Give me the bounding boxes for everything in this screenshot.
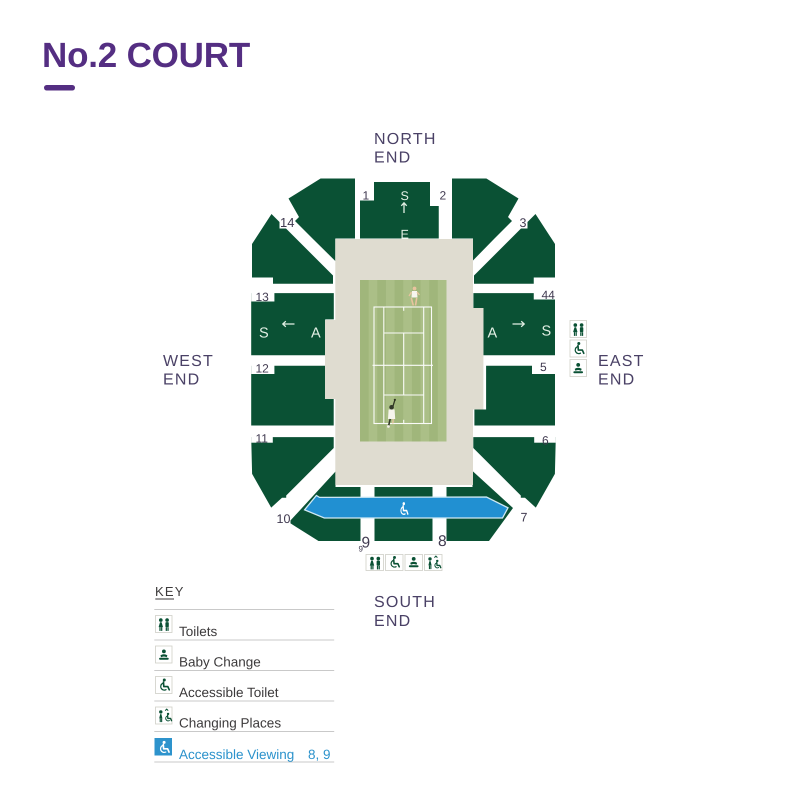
svg-text:END: END <box>374 613 411 630</box>
svg-text:7: 7 <box>521 511 528 525</box>
svg-text:11: 11 <box>256 432 269 446</box>
svg-text:Accessible Viewing: Accessible Viewing <box>179 747 294 762</box>
svg-text:S: S <box>259 326 269 342</box>
svg-text:8: 8 <box>438 533 447 550</box>
svg-text:Baby Change: Baby Change <box>179 655 261 670</box>
svg-text:S: S <box>401 189 409 203</box>
svg-text:S: S <box>542 324 552 340</box>
svg-text:A: A <box>311 326 321 342</box>
svg-text:EAST: EAST <box>598 353 645 370</box>
svg-text:A: A <box>488 326 498 342</box>
svg-text:1: 1 <box>363 189 370 203</box>
svg-text:13: 13 <box>256 290 270 304</box>
svg-text:END: END <box>598 372 635 389</box>
svg-text:No.2 COURT: No.2 COURT <box>42 36 250 75</box>
svg-text:10: 10 <box>277 512 291 526</box>
svg-text:44: 44 <box>542 288 556 302</box>
svg-text:Toilets: Toilets <box>179 624 218 639</box>
svg-text:12: 12 <box>256 362 270 376</box>
svg-text:3: 3 <box>520 216 527 230</box>
svg-text:Accessible Toilet: Accessible Toilet <box>179 685 279 700</box>
svg-text:Changing Places: Changing Places <box>179 716 281 731</box>
svg-text:14: 14 <box>280 215 294 230</box>
svg-text:6: 6 <box>542 434 549 448</box>
svg-text:WEST: WEST <box>163 353 214 370</box>
svg-text:SOUTH: SOUTH <box>374 594 436 611</box>
svg-text:NORTH: NORTH <box>374 131 437 148</box>
svg-text:KEY: KEY <box>155 584 185 599</box>
svg-text:END: END <box>163 372 200 389</box>
svg-text:END: END <box>374 150 411 167</box>
svg-text:8, 9: 8, 9 <box>308 747 331 762</box>
svg-text:2: 2 <box>440 189 447 203</box>
svg-text:9: 9 <box>359 545 364 554</box>
svg-text:5: 5 <box>540 360 547 374</box>
svg-text:E: E <box>401 228 409 242</box>
